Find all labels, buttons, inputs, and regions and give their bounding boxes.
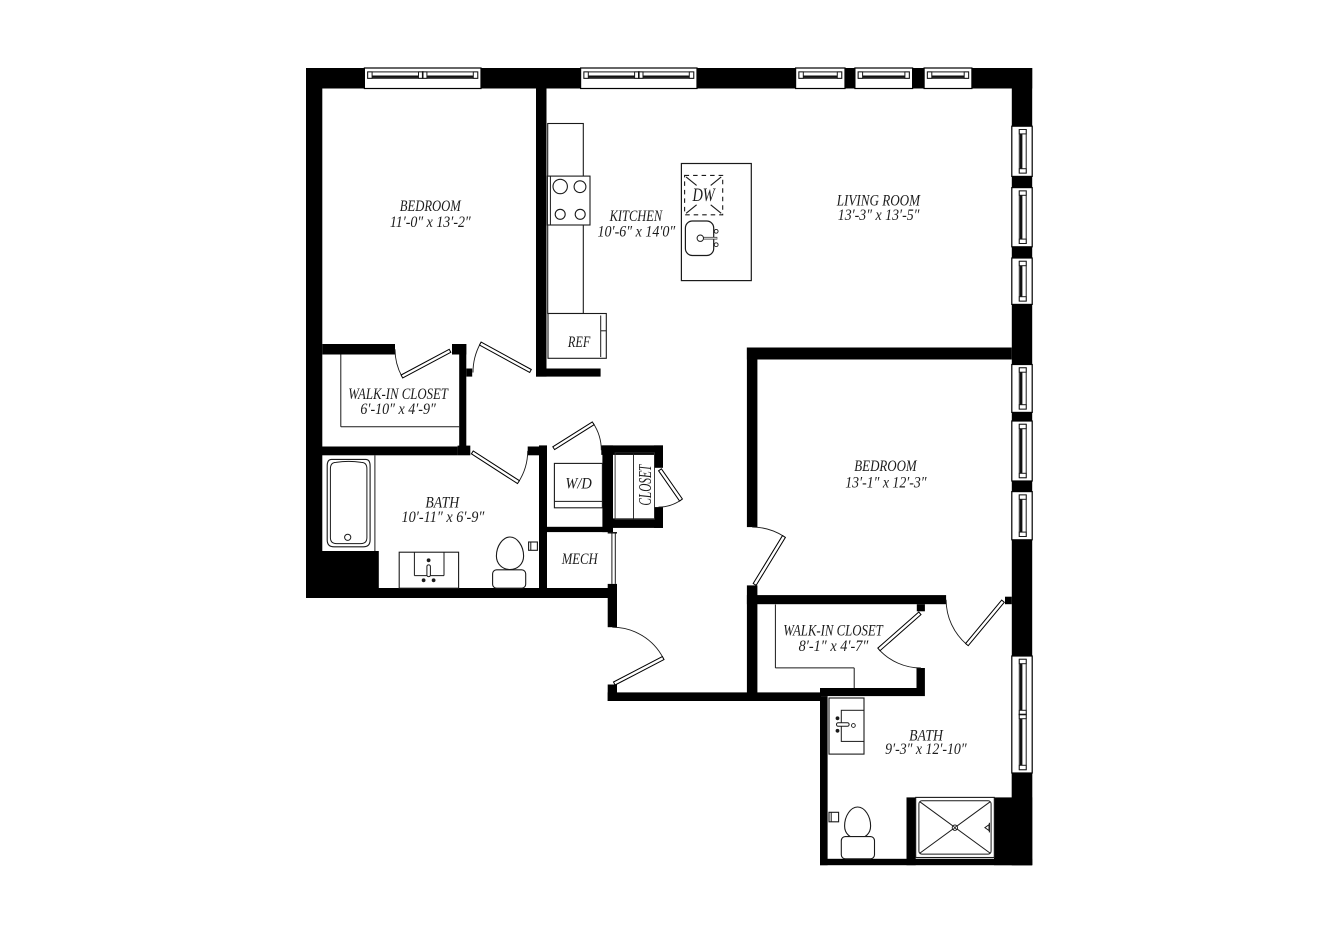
svg-text:13′-1″ x 12′-3″: 13′-1″ x 12′-3″ (845, 474, 927, 491)
svg-text:9′-3″ x 12′-10″: 9′-3″ x 12′-10″ (885, 741, 967, 758)
svg-text:MECH: MECH (561, 551, 599, 568)
svg-text:W/D: W/D (565, 475, 592, 492)
svg-text:WALK-IN CLOSET: WALK-IN CLOSET (783, 623, 884, 640)
svg-text:BEDROOM: BEDROOM (854, 458, 917, 475)
svg-text:6′-10″ x 4′-9″: 6′-10″ x 4′-9″ (360, 401, 436, 418)
svg-text:10′-6″ x 14′0″: 10′-6″ x 14′0″ (598, 224, 676, 241)
svg-text:DW: DW (692, 185, 717, 206)
svg-text:10′-11″ x 6′-9″: 10′-11″ x 6′-9″ (402, 509, 485, 526)
svg-text:CLOSET: CLOSET (635, 464, 655, 506)
svg-text:8′-1″ x 4′-7″: 8′-1″ x 4′-7″ (799, 638, 869, 655)
svg-text:REF: REF (567, 334, 590, 351)
svg-text:11′-0″ x 13′-2″: 11′-0″ x 13′-2″ (390, 214, 471, 231)
svg-text:13′-3″ x 13′-5″: 13′-3″ x 13′-5″ (838, 207, 920, 224)
svg-text:BEDROOM: BEDROOM (400, 198, 462, 215)
svg-text:KITCHEN: KITCHEN (609, 208, 664, 225)
